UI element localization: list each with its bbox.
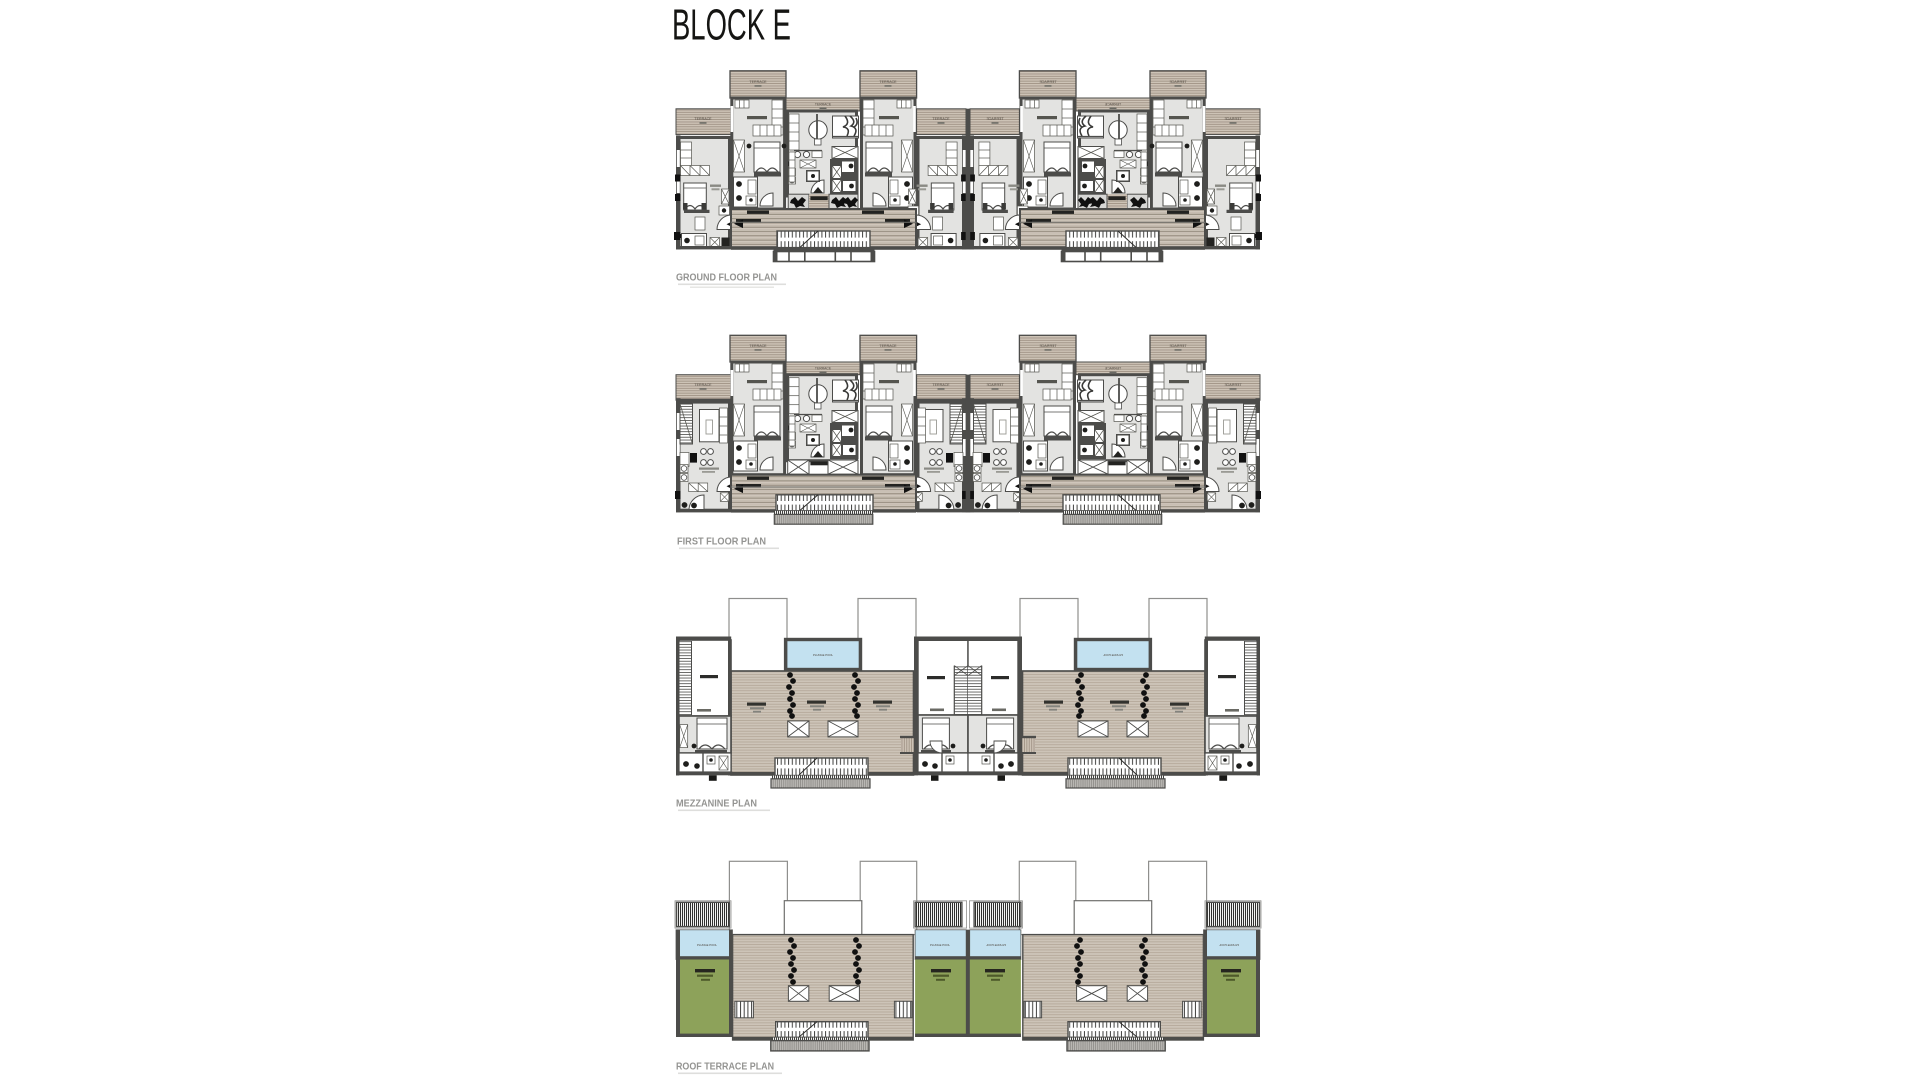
svg-text:TERRACE: TERRACE: [749, 80, 767, 84]
svg-text:TERRACE: TERRACE: [694, 383, 712, 387]
svg-text:TERRACE: TERRACE: [815, 103, 832, 107]
svg-text:PLUNGE POOL: PLUNGE POOL: [697, 943, 717, 947]
svg-text:TERRACE: TERRACE: [749, 344, 767, 348]
svg-text:BLOCK E: BLOCK E: [672, 2, 791, 50]
svg-text:TERRACE: TERRACE: [932, 117, 950, 121]
svg-text:TERRACE: TERRACE: [932, 383, 950, 387]
svg-text:ROOF TERRACE PLAN: ROOF TERRACE PLAN: [676, 1061, 774, 1073]
svg-text:TERRACE: TERRACE: [815, 367, 832, 371]
svg-text:GROUND FLOOR PLAN: GROUND FLOOR PLAN: [676, 272, 777, 284]
svg-text:TERRACE: TERRACE: [879, 80, 897, 84]
svg-text:FIRST FLOOR PLAN: FIRST FLOOR PLAN: [677, 536, 766, 548]
svg-text:PLUNGE POOL: PLUNGE POOL: [930, 943, 950, 947]
svg-text:PLUNGE POOL: PLUNGE POOL: [813, 653, 833, 657]
svg-text:TERRACE: TERRACE: [879, 344, 897, 348]
svg-text:TERRACE: TERRACE: [694, 117, 712, 121]
svg-text:MEZZANINE PLAN: MEZZANINE PLAN: [676, 798, 757, 810]
